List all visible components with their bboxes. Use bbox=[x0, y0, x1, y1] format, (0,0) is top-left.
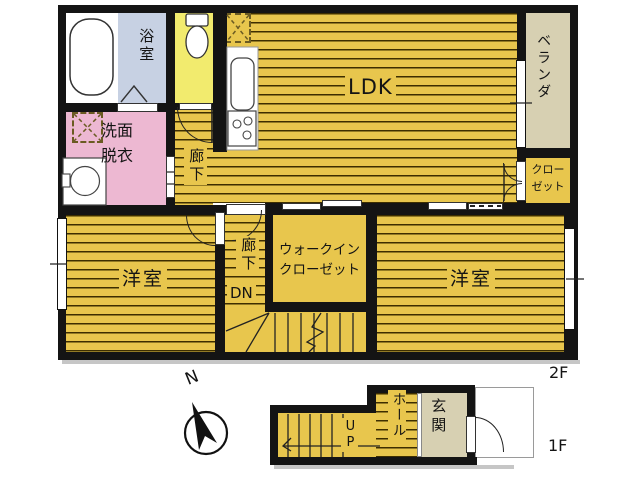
ldk-label: LDK bbox=[345, 74, 396, 100]
window-ldk-veranda bbox=[516, 60, 526, 148]
room-stairs-1f bbox=[278, 413, 376, 457]
wall bbox=[213, 13, 227, 152]
wall bbox=[265, 302, 377, 312]
wall bbox=[58, 205, 227, 215]
hall-label: ホール bbox=[388, 390, 406, 441]
dn-label: DN bbox=[227, 284, 256, 303]
washroom-label: 洗面 脱衣 bbox=[84, 119, 150, 169]
veranda-label: ベランダ bbox=[535, 33, 551, 101]
sliding-door-wic-panel bbox=[282, 203, 321, 210]
door-opening-bath bbox=[117, 103, 158, 112]
refrigerator-space-icon bbox=[225, 13, 251, 43]
floor-1f-label: 1F bbox=[548, 437, 567, 455]
sliding-door-wic-panel bbox=[322, 200, 362, 207]
walk-in-closet-label: ウォークイン クローゼット bbox=[272, 241, 367, 280]
floor-2f-label: 2F bbox=[549, 364, 568, 382]
wall bbox=[517, 148, 578, 158]
bathroom-label: 浴室 bbox=[137, 28, 154, 64]
north-label: N bbox=[183, 367, 202, 390]
plan-shadow bbox=[62, 360, 580, 364]
room-toilet bbox=[175, 13, 213, 103]
bedroom-left-label: 洋室 bbox=[119, 268, 167, 292]
room-stairs-2f bbox=[225, 312, 366, 352]
plan-shadow bbox=[274, 465, 514, 469]
wall bbox=[58, 352, 578, 360]
wall bbox=[270, 405, 376, 413]
entrance-step bbox=[417, 393, 422, 457]
floor-plan-canvas: 浴室 洗面 脱衣 廊下 LDK ベランダ クロー ゼット 廊下 DN ウォークイ… bbox=[0, 0, 640, 480]
door-opening-bedroom-left bbox=[215, 212, 225, 245]
window-bedroom-right bbox=[564, 228, 575, 330]
compass-icon bbox=[185, 402, 227, 454]
window-bedroom-left bbox=[57, 218, 67, 310]
entrance-label: 玄関 bbox=[429, 398, 446, 436]
up-label: UP bbox=[341, 418, 358, 452]
corridor-lower-label: 廊下 bbox=[236, 236, 259, 274]
wall bbox=[367, 385, 475, 393]
room-bath-tub-area bbox=[65, 13, 118, 103]
sliding-door-bedroom-right bbox=[428, 202, 467, 210]
corridor-upper-label: 廊下 bbox=[184, 147, 207, 185]
sliding-door-bedroom-right bbox=[468, 203, 503, 210]
bedroom-right-label: 洋室 bbox=[447, 268, 495, 292]
wall bbox=[58, 5, 578, 13]
sliding-door-washroom bbox=[166, 156, 175, 198]
closet-label: クロー ゼット bbox=[525, 161, 571, 195]
room-ldk bbox=[213, 13, 517, 203]
wall bbox=[270, 457, 477, 465]
wall bbox=[366, 203, 377, 352]
wall bbox=[270, 405, 278, 465]
